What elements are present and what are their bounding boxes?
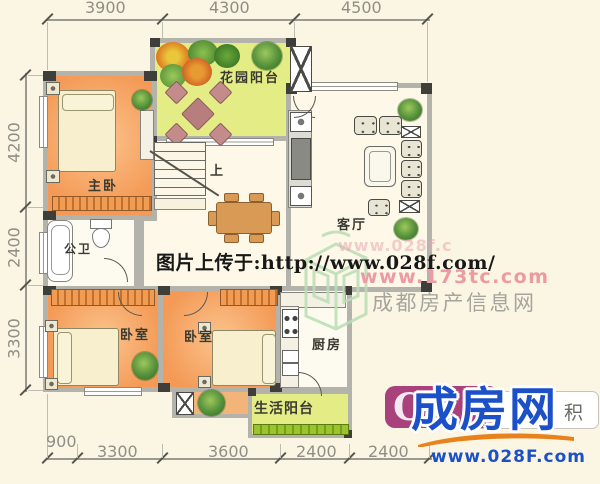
wall-block <box>150 38 160 47</box>
plant-icon <box>132 90 152 110</box>
watermark-chengdu-site: 成都房产信息网 <box>372 287 537 317</box>
dim-label: 2400 <box>368 442 409 461</box>
nightstand <box>45 378 58 390</box>
dim-label: 900 <box>46 432 77 451</box>
coffee-table-inner <box>369 151 391 182</box>
dim-ext <box>427 22 428 82</box>
side-table <box>401 126 421 138</box>
dim-ext <box>162 444 163 458</box>
watermark-173tc: www.173tc.com <box>360 266 550 288</box>
side-table <box>399 200 420 213</box>
pillow <box>57 332 72 384</box>
dim-label: 4200 <box>5 117 24 169</box>
sofa-single <box>401 180 422 198</box>
shaft-icon <box>290 46 312 92</box>
shaft-icon <box>176 392 194 415</box>
sofa-single <box>379 116 402 135</box>
pillow <box>262 334 276 384</box>
wardrobe <box>52 196 152 211</box>
window <box>84 387 142 396</box>
flower-bed <box>182 58 212 86</box>
sink-basin <box>282 363 299 376</box>
dim-ext <box>294 22 295 38</box>
dim-ext <box>349 444 350 458</box>
dining-table <box>216 202 272 234</box>
room-label-service-balcony: 生活阳台 <box>254 398 314 418</box>
dim-ext <box>28 390 44 391</box>
sink-basin <box>282 350 299 363</box>
wall-block <box>43 71 56 81</box>
dim-ext <box>162 22 163 38</box>
dining-chair <box>208 211 217 226</box>
dim-line-left <box>25 73 27 392</box>
room-label-master: 主卧 <box>88 175 118 194</box>
speaker-icon <box>290 186 312 206</box>
room-label-kitchen: 厨房 <box>312 334 342 353</box>
plant-icon <box>198 390 225 416</box>
sofa-single <box>354 116 377 135</box>
dim-ext <box>77 444 78 458</box>
wall-block <box>421 83 432 94</box>
dim-label: 2400 <box>5 222 24 274</box>
dim-ext <box>47 22 48 70</box>
dining-chair <box>224 193 239 202</box>
wall-block <box>43 211 56 220</box>
dim-label: 3300 <box>5 313 24 365</box>
plant-icon <box>398 99 422 121</box>
stairs-up-label: 上 <box>210 160 223 179</box>
dim-line-top <box>46 19 430 21</box>
dim-label: 3300 <box>97 442 138 461</box>
room-label-bedroom-a: 卧室 <box>120 324 150 343</box>
sofa-single <box>368 199 390 216</box>
wall-block <box>144 71 157 81</box>
room-label-bathroom: 公卫 <box>64 240 92 257</box>
sofa-single <box>401 160 422 178</box>
room-label-garden: 花园阳台 <box>220 67 280 86</box>
chengfangwang-logo: 成房网 成房网 <box>411 381 586 445</box>
planter-strip <box>253 424 349 435</box>
dim-label: 3600 <box>208 442 249 461</box>
dim-label: 4500 <box>341 0 382 17</box>
window <box>39 96 48 148</box>
dim-label: 2400 <box>296 442 337 461</box>
dim-ext <box>28 75 44 76</box>
dim-ext <box>28 285 44 286</box>
tv-icon <box>291 138 311 180</box>
dining-chair <box>249 193 264 202</box>
window <box>39 326 48 378</box>
nightstand <box>46 82 60 95</box>
window <box>298 82 398 91</box>
dim-ext <box>280 444 281 458</box>
plant-icon <box>252 42 282 70</box>
wall-block <box>158 383 170 392</box>
nightstand <box>45 320 58 332</box>
plant-icon <box>132 352 158 380</box>
nightstand <box>46 170 60 183</box>
dining-chair <box>224 234 239 243</box>
dining-chair <box>271 211 280 226</box>
nightstand <box>198 376 211 388</box>
wardrobe <box>220 289 278 306</box>
brand-url: www.028F.com <box>431 447 586 467</box>
sofa-single <box>401 140 422 158</box>
dim-label: 4300 <box>209 0 250 17</box>
stairs-rail <box>154 198 206 210</box>
dim-label: 3900 <box>85 0 126 17</box>
pillow <box>62 94 114 111</box>
wall-block <box>248 388 256 396</box>
flower-bed <box>214 44 240 68</box>
dim-ext <box>28 207 44 208</box>
wall-block <box>158 286 170 295</box>
room-label-bedroom-b: 卧室 <box>184 326 214 345</box>
floor-plan-image: 3900 4300 4500 4200 2400 3300 900 3300 <box>0 0 600 484</box>
brand-text: 成房网 <box>411 381 558 441</box>
dining-chair <box>249 234 264 243</box>
